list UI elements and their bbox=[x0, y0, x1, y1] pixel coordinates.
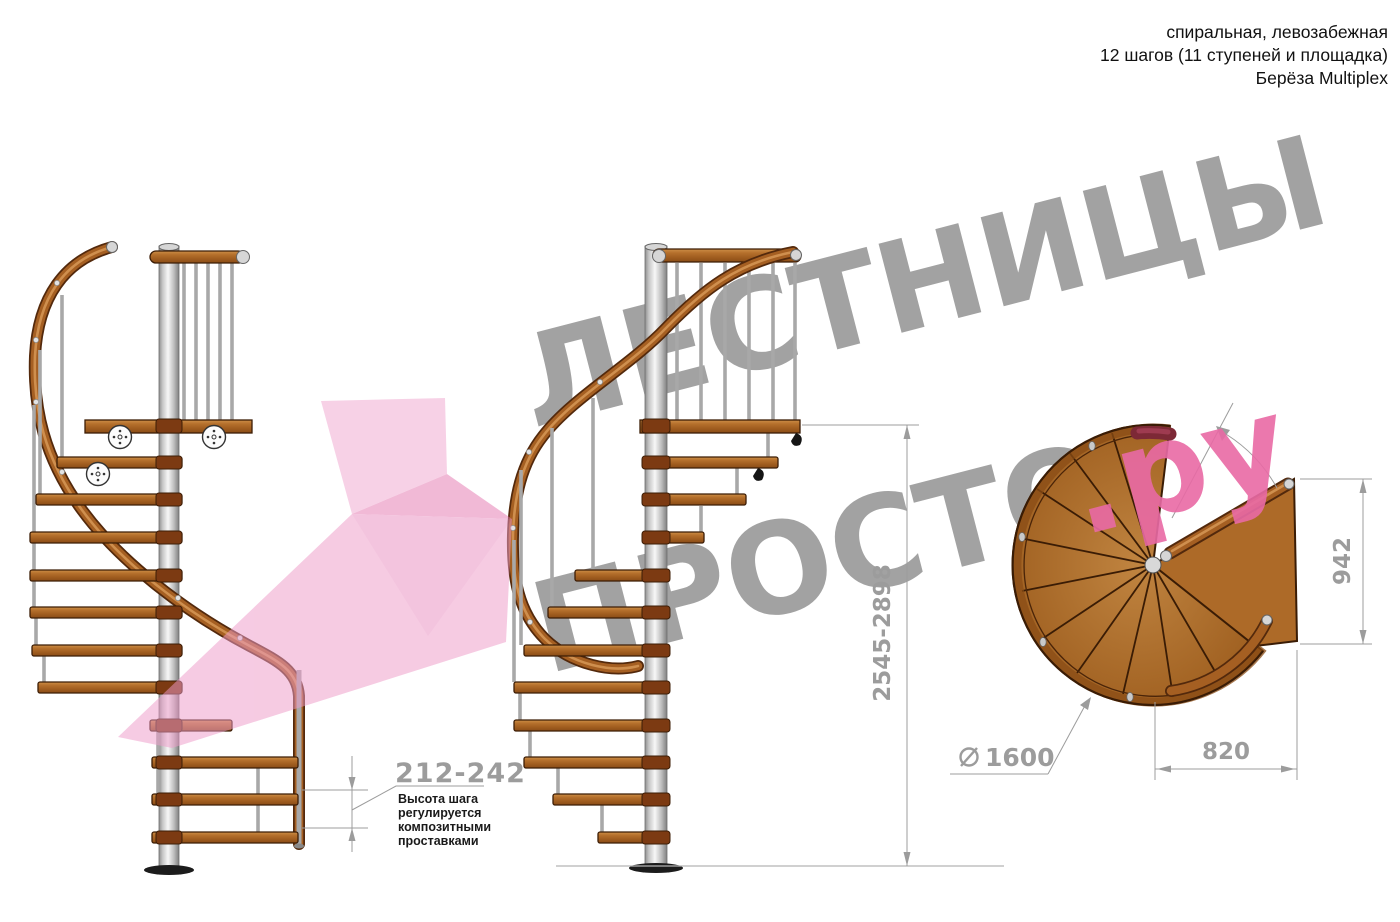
step-height-value: 212-242 bbox=[395, 758, 526, 789]
diameter-value: 1600 bbox=[985, 743, 1055, 772]
diameter-icon bbox=[961, 748, 978, 766]
dim-arrowhead bbox=[1281, 766, 1295, 773]
railing-end-cap bbox=[237, 251, 250, 264]
step-height-note-1: Высота шага bbox=[398, 792, 479, 806]
dim-arrowhead bbox=[349, 828, 356, 841]
title-block: спиральная, левозабежная 12 шагов (11 ст… bbox=[1100, 22, 1388, 88]
mounting-plates bbox=[87, 426, 226, 486]
platform-bracket bbox=[791, 433, 802, 446]
dim-arrowhead bbox=[1080, 697, 1091, 710]
railing-top-bar bbox=[150, 251, 244, 263]
dimension-landing-width: 942 bbox=[1300, 479, 1372, 644]
dim-arrowhead bbox=[904, 852, 911, 866]
dim-arrowhead bbox=[904, 425, 911, 439]
dimension-diameter: 1600 bbox=[950, 697, 1091, 774]
landing-width-value: 942 bbox=[1330, 537, 1356, 585]
total-height-value: 2545-2898 bbox=[870, 564, 896, 702]
railing-end-cap bbox=[653, 250, 666, 263]
title-line2: 12 шагов (11 ступеней и площадка) bbox=[1100, 45, 1388, 65]
title-line1: спиральная, левозабежная bbox=[1166, 22, 1388, 42]
left-side-view bbox=[30, 242, 304, 876]
pole-base-flange bbox=[144, 865, 194, 875]
handrail-top-cap bbox=[107, 242, 118, 253]
technical-drawing: ЛЕСТНИЦЫ ПРОСТО bbox=[0, 0, 1400, 922]
dim-arrowhead bbox=[1360, 630, 1367, 644]
step-height-note-3: композитными bbox=[398, 820, 491, 834]
landing-depth-value: 820 bbox=[1202, 739, 1250, 765]
step-height-note-2: регулируется bbox=[398, 806, 481, 820]
step-bracket bbox=[753, 468, 764, 481]
pole-base-flange bbox=[629, 863, 683, 873]
dim-arrowhead bbox=[349, 777, 356, 790]
step-height-note-4: проставками bbox=[398, 834, 479, 848]
handrail-top-cap bbox=[791, 250, 802, 261]
dim-arrowhead bbox=[1157, 766, 1171, 773]
center-pole bbox=[159, 246, 179, 868]
drawing-page: ЛЕСТНИЦЫ ПРОСТО bbox=[0, 0, 1400, 922]
title-line3: Берёза Multiplex bbox=[1256, 68, 1389, 88]
pole-top-cap bbox=[159, 244, 179, 251]
plan-center-pole bbox=[1145, 557, 1161, 573]
dim-arrowhead bbox=[1360, 479, 1367, 493]
dimension-step-height: 212-242 Высота шага регулируется компози… bbox=[302, 756, 526, 852]
